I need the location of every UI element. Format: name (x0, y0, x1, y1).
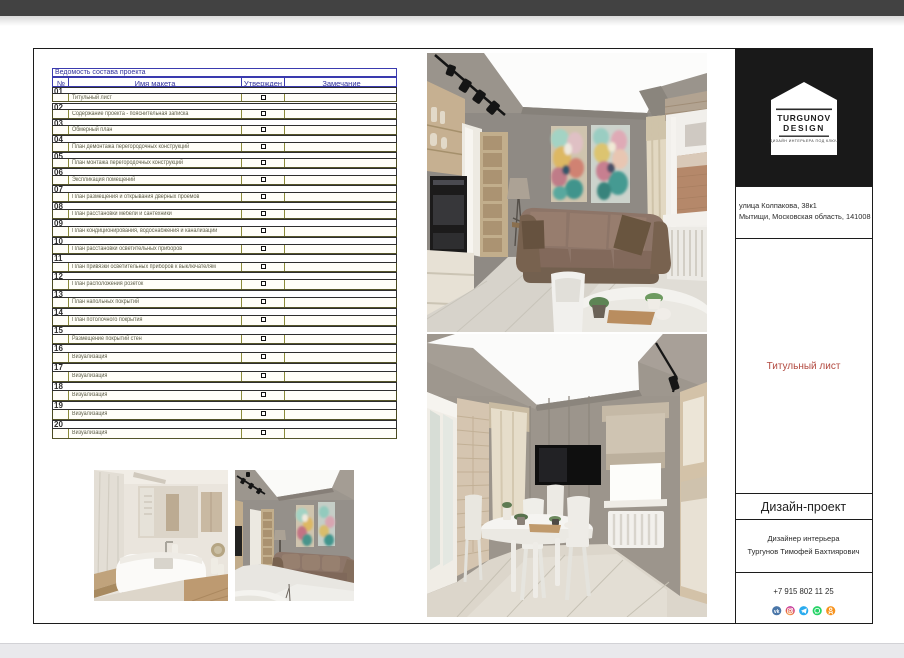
svg-text:TURGUNOV: TURGUNOV (777, 113, 831, 123)
svg-text:ДИЗАЙН ИНТЕРЬЕРА ПОД КЛЮЧ: ДИЗАЙН ИНТЕРЬЕРА ПОД КЛЮЧ (769, 139, 837, 143)
svg-text:DESIGN: DESIGN (783, 123, 825, 133)
svg-text:vk: vk (774, 608, 780, 614)
